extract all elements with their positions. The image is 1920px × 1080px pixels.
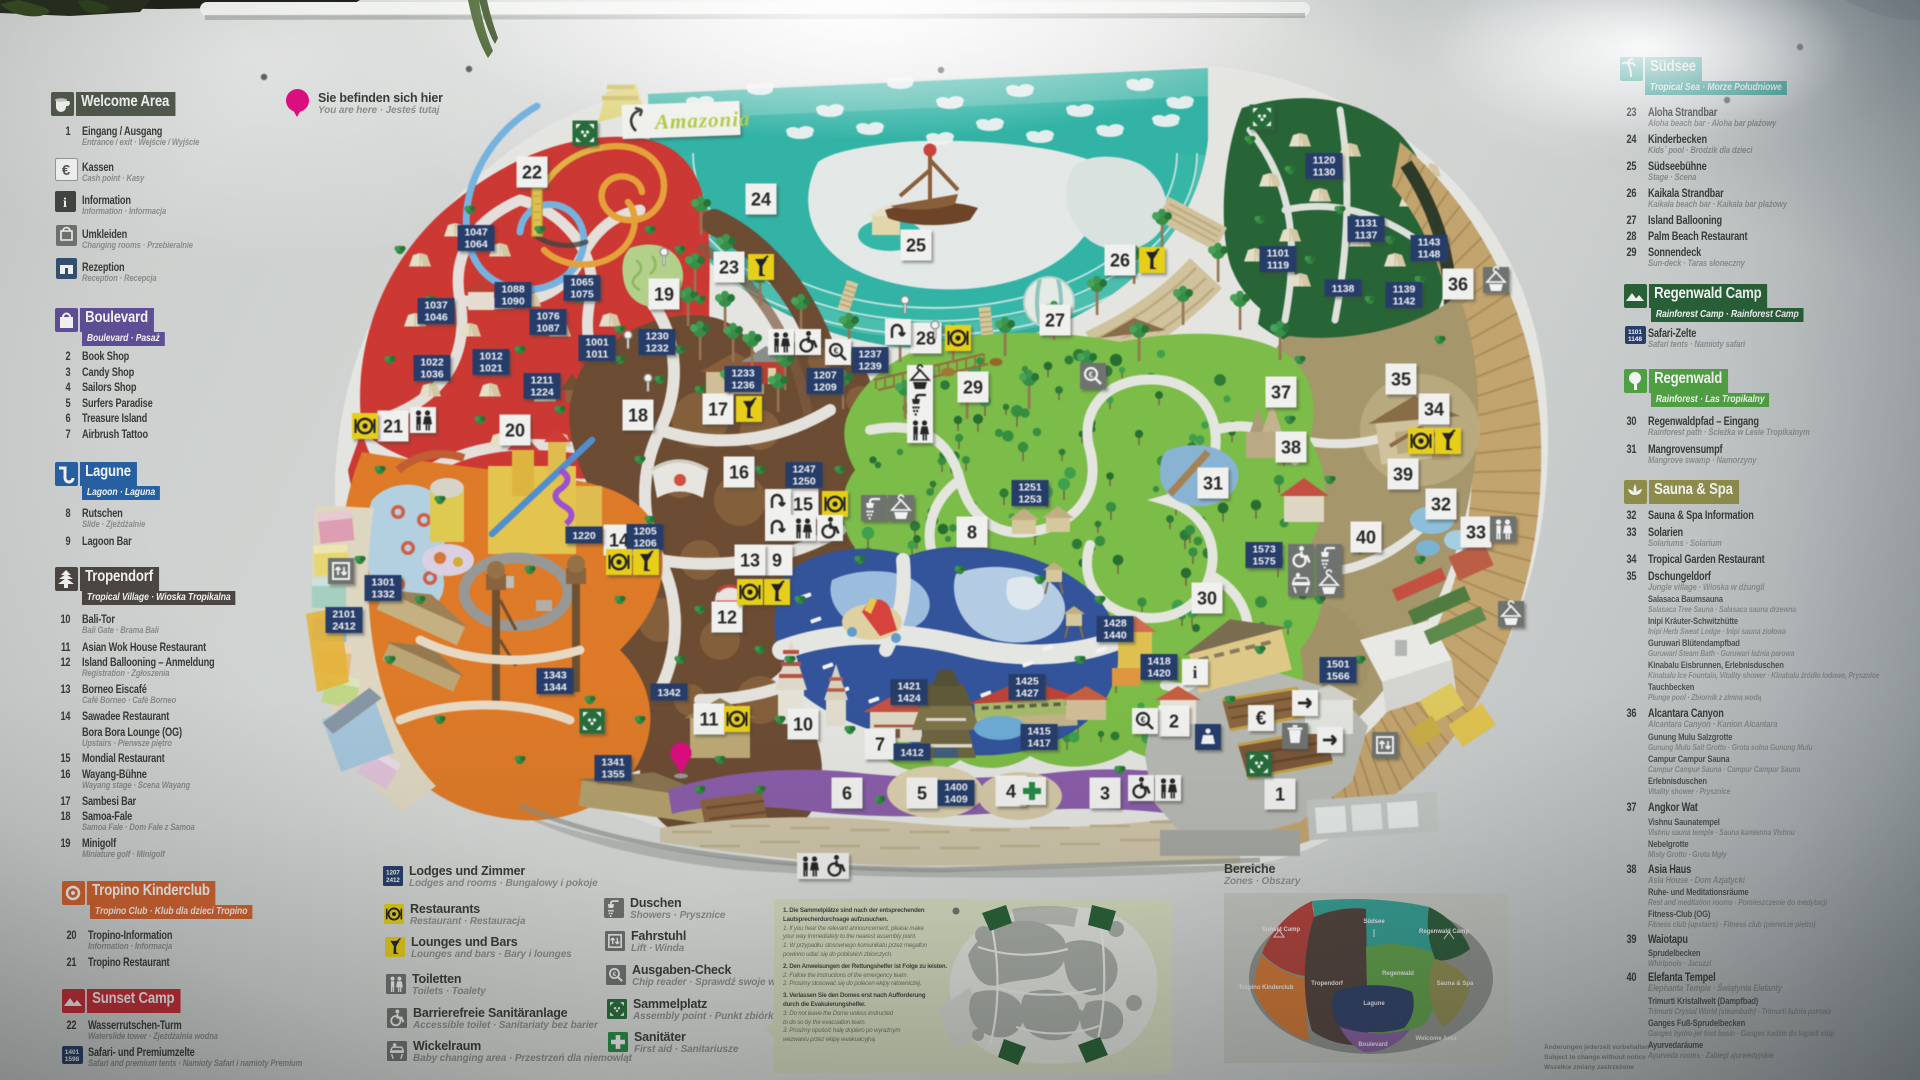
svg-text:1207: 1207 bbox=[813, 370, 837, 382]
svg-text:1236: 1236 bbox=[731, 380, 755, 392]
svg-text:13: 13 bbox=[740, 551, 760, 571]
svg-text:26: 26 bbox=[1110, 251, 1130, 271]
svg-text:35: 35 bbox=[1391, 370, 1411, 390]
svg-text:16: 16 bbox=[729, 463, 749, 483]
svg-text:1342: 1342 bbox=[657, 687, 681, 699]
svg-text:30: 30 bbox=[1197, 589, 1217, 609]
svg-text:1119: 1119 bbox=[1267, 260, 1289, 272]
svg-text:32: 32 bbox=[1431, 495, 1451, 515]
svg-text:1130: 1130 bbox=[1313, 167, 1336, 179]
svg-text:1573: 1573 bbox=[1252, 544, 1276, 556]
svg-text:1417: 1417 bbox=[1027, 738, 1051, 750]
svg-text:4: 4 bbox=[1006, 782, 1016, 802]
svg-text:1046: 1046 bbox=[424, 312, 448, 324]
svg-text:39: 39 bbox=[1393, 465, 1413, 485]
svg-text:€: € bbox=[62, 162, 71, 179]
svg-text:9: 9 bbox=[772, 551, 782, 571]
svg-text:1427: 1427 bbox=[1015, 688, 1039, 700]
svg-text:15: 15 bbox=[793, 495, 813, 515]
svg-text:1011: 1011 bbox=[586, 349, 609, 361]
svg-text:1233: 1233 bbox=[731, 368, 755, 380]
svg-text:1575: 1575 bbox=[1252, 556, 1276, 568]
svg-text:33: 33 bbox=[1466, 523, 1486, 543]
svg-text:1131: 1131 bbox=[1355, 218, 1378, 230]
svg-text:1253: 1253 bbox=[1018, 494, 1042, 506]
svg-text:1440: 1440 bbox=[1103, 630, 1127, 642]
svg-text:1143: 1143 bbox=[1418, 237, 1441, 249]
svg-text:23: 23 bbox=[719, 258, 739, 278]
svg-text:1012: 1012 bbox=[479, 351, 503, 363]
svg-text:1250: 1250 bbox=[792, 476, 816, 488]
svg-text:1075: 1075 bbox=[570, 289, 594, 301]
svg-text:1047: 1047 bbox=[464, 227, 488, 239]
svg-text:12: 12 bbox=[717, 608, 737, 628]
svg-text:1207: 1207 bbox=[386, 869, 400, 876]
svg-text:31: 31 bbox=[1203, 474, 1223, 494]
svg-text:1598: 1598 bbox=[65, 1056, 80, 1063]
svg-text:14: 14 bbox=[609, 531, 629, 551]
svg-text:29: 29 bbox=[963, 378, 983, 398]
svg-text:19: 19 bbox=[654, 285, 674, 305]
svg-text:1332: 1332 bbox=[371, 589, 395, 601]
svg-text:1421: 1421 bbox=[897, 681, 921, 693]
svg-text:1355: 1355 bbox=[601, 769, 625, 781]
svg-text:1087: 1087 bbox=[536, 323, 560, 335]
svg-text:1400: 1400 bbox=[944, 782, 968, 794]
svg-text:1344: 1344 bbox=[543, 682, 567, 694]
svg-text:8: 8 bbox=[967, 523, 977, 543]
svg-text:10: 10 bbox=[793, 715, 813, 735]
svg-text:1088: 1088 bbox=[501, 284, 525, 296]
svg-text:34: 34 bbox=[1424, 400, 1444, 420]
svg-text:1: 1 bbox=[1275, 785, 1285, 805]
svg-text:1418: 1418 bbox=[1147, 656, 1171, 668]
svg-text:1409: 1409 bbox=[944, 794, 968, 806]
svg-text:1566: 1566 bbox=[1326, 671, 1350, 683]
svg-text:11: 11 bbox=[699, 710, 718, 730]
svg-text:7: 7 bbox=[875, 735, 885, 755]
svg-text:1301: 1301 bbox=[371, 577, 395, 589]
svg-text:1205: 1205 bbox=[633, 526, 657, 538]
svg-text:1412: 1412 bbox=[900, 747, 924, 759]
svg-text:36: 36 bbox=[1448, 275, 1468, 295]
svg-text:1137: 1137 bbox=[1355, 230, 1378, 242]
svg-text:1206: 1206 bbox=[633, 538, 657, 550]
svg-text:1090: 1090 bbox=[501, 296, 525, 308]
svg-text:18: 18 bbox=[628, 406, 648, 426]
svg-text:24: 24 bbox=[751, 190, 771, 210]
svg-text:25: 25 bbox=[906, 236, 926, 256]
svg-text:1036: 1036 bbox=[420, 369, 444, 381]
svg-text:1022: 1022 bbox=[420, 357, 444, 369]
svg-text:5: 5 bbox=[917, 784, 927, 804]
svg-text:1120: 1120 bbox=[1313, 155, 1336, 167]
svg-text:i: i bbox=[63, 196, 67, 211]
svg-text:1501: 1501 bbox=[1326, 659, 1350, 671]
svg-text:22: 22 bbox=[522, 163, 542, 183]
svg-text:1064: 1064 bbox=[464, 239, 488, 251]
svg-text:21: 21 bbox=[383, 417, 403, 437]
svg-text:1251: 1251 bbox=[1018, 482, 1042, 494]
svg-text:1343: 1343 bbox=[543, 670, 567, 682]
svg-text:1415: 1415 bbox=[1027, 726, 1051, 738]
svg-text:1428: 1428 bbox=[1103, 618, 1127, 630]
svg-text:1224: 1224 bbox=[530, 387, 554, 399]
svg-text:1101: 1101 bbox=[1628, 329, 1642, 336]
svg-text:1209: 1209 bbox=[813, 382, 837, 394]
svg-text:1076: 1076 bbox=[536, 311, 560, 323]
svg-text:17: 17 bbox=[708, 400, 728, 420]
svg-text:1237: 1237 bbox=[858, 349, 882, 361]
svg-text:2412: 2412 bbox=[332, 621, 356, 633]
svg-text:1239: 1239 bbox=[858, 361, 882, 373]
svg-text:1220: 1220 bbox=[572, 530, 596, 542]
svg-text:27: 27 bbox=[1045, 311, 1065, 331]
svg-text:3: 3 bbox=[1100, 784, 1110, 804]
svg-text:28: 28 bbox=[916, 329, 936, 349]
svg-text:Amazonia: Amazonia bbox=[653, 107, 751, 134]
svg-text:2101: 2101 bbox=[332, 609, 356, 621]
svg-text:38: 38 bbox=[1281, 438, 1301, 458]
svg-text:1420: 1420 bbox=[1147, 668, 1171, 680]
svg-text:40: 40 bbox=[1356, 528, 1376, 548]
svg-text:1101: 1101 bbox=[1267, 248, 1290, 260]
svg-text:1211: 1211 bbox=[531, 375, 554, 387]
svg-text:1230: 1230 bbox=[645, 331, 669, 343]
svg-text:1232: 1232 bbox=[645, 343, 669, 355]
svg-text:1139: 1139 bbox=[1393, 284, 1416, 296]
svg-text:1142: 1142 bbox=[1393, 296, 1416, 308]
svg-text:2: 2 bbox=[1169, 712, 1179, 732]
svg-text:1148: 1148 bbox=[1628, 336, 1642, 343]
svg-text:2412: 2412 bbox=[386, 877, 400, 884]
svg-text:20: 20 bbox=[505, 421, 525, 441]
svg-text:1021: 1021 bbox=[479, 363, 503, 375]
svg-text:1138: 1138 bbox=[1332, 283, 1355, 295]
svg-text:37: 37 bbox=[1271, 383, 1291, 403]
svg-text:1037: 1037 bbox=[424, 300, 448, 312]
svg-text:1065: 1065 bbox=[570, 277, 594, 289]
svg-text:6: 6 bbox=[842, 784, 852, 804]
svg-text:1425: 1425 bbox=[1015, 676, 1039, 688]
svg-text:1341: 1341 bbox=[601, 757, 625, 769]
svg-text:1148: 1148 bbox=[1418, 249, 1441, 261]
svg-text:1001: 1001 bbox=[585, 337, 609, 349]
svg-text:1401: 1401 bbox=[65, 1049, 80, 1056]
svg-text:1424: 1424 bbox=[897, 693, 921, 705]
svg-text:1247: 1247 bbox=[792, 464, 816, 476]
